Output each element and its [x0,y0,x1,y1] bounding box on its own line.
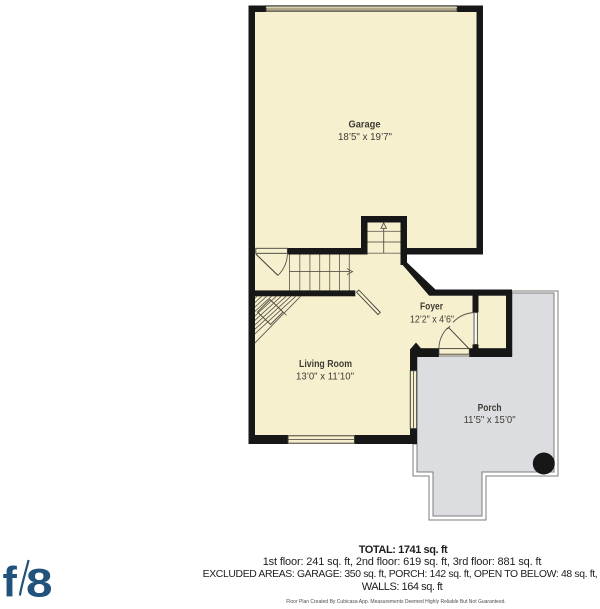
svg-text:f: f [3,559,18,605]
svg-text:18’5" x 19’7": 18’5" x 19’7" [338,131,392,143]
svg-text:Living Room: Living Room [299,358,352,370]
svg-text:12’2" x 4’6": 12’2" x 4’6" [410,314,454,326]
svg-text:8: 8 [26,562,53,605]
svg-text:Foyer: Foyer [420,301,443,313]
svg-text:Porch: Porch [478,402,502,414]
svg-text:13’0" x 11’10": 13’0" x 11’10" [296,371,354,383]
svg-text:11’5" x 15’0": 11’5" x 15’0" [464,414,516,426]
svg-text:Garage: Garage [349,119,381,131]
